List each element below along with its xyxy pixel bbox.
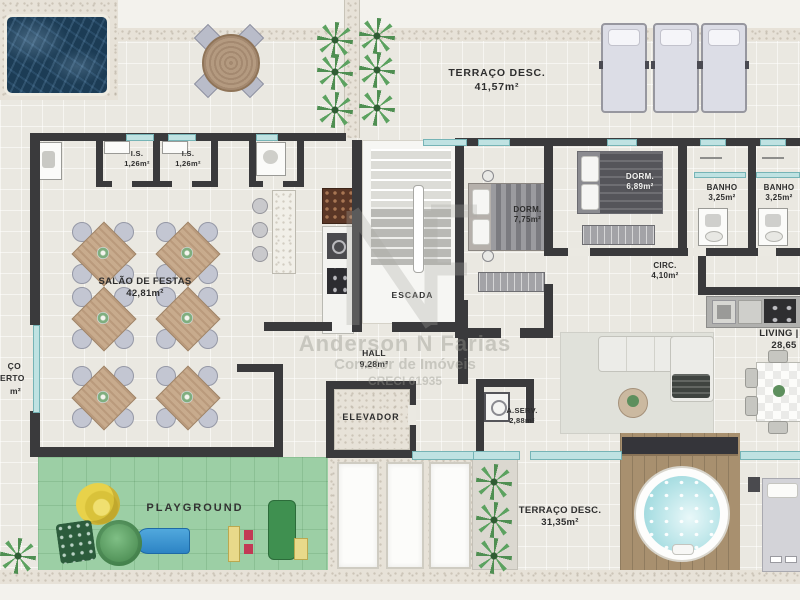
sun-lounger <box>601 23 647 113</box>
bed-bottom-right <box>762 478 800 572</box>
seesaw-seat <box>244 544 253 554</box>
room-label-circ: CIRC. 4,10m² <box>637 261 693 282</box>
palm-tree <box>317 54 353 90</box>
vanity-banho1 <box>698 208 728 246</box>
dishwasher <box>738 300 762 324</box>
bottom-exterior-wall-band <box>0 570 800 584</box>
kitchen-cooktop <box>764 299 796 323</box>
bar-stool <box>252 198 268 214</box>
sconce <box>482 170 494 182</box>
palm-tree <box>359 18 395 54</box>
wine-rack <box>322 188 354 224</box>
pool <box>4 14 110 96</box>
tunnel-slide <box>136 528 190 554</box>
wc-basin <box>256 142 286 176</box>
sun-lounger <box>653 23 699 113</box>
room-label-banho2: BANHO 3,25m² <box>751 183 800 204</box>
dining-chair <box>768 421 788 434</box>
room-label-escada: ESCADA <box>370 290 455 301</box>
palm-tree <box>359 52 395 88</box>
sun-lounger <box>701 23 747 113</box>
wardrobe-dorm2 <box>582 225 655 245</box>
room-label-terraco-bottom: TERRAÇO DESC. 31,35m² <box>505 505 615 530</box>
skylight-panel <box>429 462 471 569</box>
sofa-throw <box>672 374 710 398</box>
room-label-hall: HALL 9,28m² <box>339 348 409 370</box>
nightstand <box>748 477 760 492</box>
dining-table <box>756 362 800 422</box>
room-label-terraco-left-clipped: ÇO ERTO m² <box>0 360 21 397</box>
seesaw-seat <box>244 530 253 540</box>
slide-green <box>268 500 296 560</box>
swing-frame <box>228 526 240 562</box>
vanity-banho2 <box>758 208 788 246</box>
spiral-slide <box>76 483 120 525</box>
round-table-group <box>198 28 260 94</box>
room-label-living: LIVING | C 28,65 <box>748 328 800 353</box>
palm-tree <box>359 90 395 126</box>
palm-tree <box>317 22 353 58</box>
slide-ladder <box>294 538 308 560</box>
room-label-salao: SALÃO DE FESTAS 42,81m² <box>75 276 215 301</box>
skylight-panel <box>337 462 379 569</box>
coffee-table <box>618 388 648 418</box>
bar-stool <box>252 246 268 262</box>
dining-chair <box>745 368 758 388</box>
room-label-banho1: BANHO 3,25m² <box>694 183 750 204</box>
bar-stool <box>252 222 268 238</box>
room-label-playground: PLAYGROUND <box>130 501 260 515</box>
floor-plan: TERRAÇO DESC. 41,57m² I.S. 1,26m² I.S. 1… <box>0 0 800 600</box>
palm-tree <box>476 538 512 574</box>
wardrobe-dorm1 <box>478 272 545 292</box>
room-label-aserv: A.SERV. 2,88m² <box>496 406 548 426</box>
palm-tree <box>317 92 353 128</box>
room-label-dorm1: DORM. 7,75m² <box>500 205 555 226</box>
cooktop <box>327 268 347 294</box>
palm-tree <box>0 538 36 574</box>
dining-chair <box>745 396 758 416</box>
jacuzzi <box>636 468 728 560</box>
climber <box>55 520 96 565</box>
room-label-elevador: ELEVADOR <box>330 412 412 424</box>
room-label-is2: I.S. 1,26m² <box>163 149 213 169</box>
shower-fitting <box>762 157 784 159</box>
shower-fitting <box>700 157 722 159</box>
party-table <box>155 365 219 429</box>
playground-tree <box>96 520 142 566</box>
party-table <box>71 365 135 429</box>
skylight-panel <box>386 462 424 569</box>
bottom-sidewalk <box>0 584 800 600</box>
deck-bench <box>622 437 738 456</box>
palm-tree <box>476 464 512 500</box>
room-label-is1: I.S. 1,26m² <box>112 149 162 169</box>
bar-island <box>272 190 296 274</box>
room-label-dorm2: DORM. 6,89m² <box>612 172 668 193</box>
kitchenette-sink <box>327 233 347 259</box>
kitchen-sink <box>712 300 736 324</box>
sconce <box>482 250 494 262</box>
room-label-terraco-top: TERRAÇO DESC. 41,57m² <box>437 67 557 94</box>
